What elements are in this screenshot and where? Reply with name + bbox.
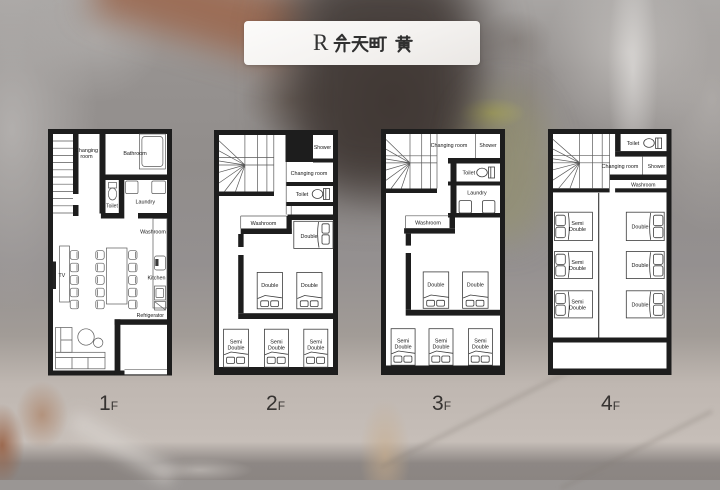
svg-text:R: R	[313, 30, 329, 55]
svg-text:Shower: Shower	[313, 145, 331, 151]
svg-text:Double: Double	[395, 345, 412, 351]
svg-text:Changing room: Changing room	[290, 171, 327, 177]
svg-text:Shower: Shower	[648, 164, 666, 170]
svg-text:Double: Double	[300, 234, 317, 240]
svg-text:Double: Double	[569, 227, 586, 233]
svg-text:Double: Double	[569, 305, 586, 311]
svg-text:Toilet: Toilet	[463, 171, 476, 177]
svg-text:Double: Double	[267, 345, 284, 351]
svg-text:Changing room: Changing room	[431, 143, 468, 149]
svg-text:Toilet: Toilet	[295, 192, 308, 198]
svg-text:Washroom: Washroom	[631, 183, 655, 189]
svg-text:Bathroom: Bathroom	[123, 151, 147, 157]
svg-text:Double: Double	[569, 266, 586, 272]
svg-text:Double: Double	[631, 225, 648, 231]
svg-text:Washroom: Washroom	[415, 221, 441, 227]
svg-text:Double: Double	[631, 263, 648, 269]
svg-text:Laundry: Laundry	[135, 200, 155, 206]
svg-text:Double: Double	[427, 283, 444, 289]
svg-text:Washroom: Washroom	[140, 230, 166, 236]
svg-text:Double: Double	[261, 283, 278, 289]
svg-text:Double: Double	[307, 345, 324, 351]
svg-text:Changing room: Changing room	[602, 164, 639, 170]
svg-text:Double: Double	[300, 283, 317, 289]
svg-text:Double: Double	[467, 283, 484, 289]
svg-text:Double: Double	[631, 302, 648, 308]
svg-text:Double: Double	[227, 345, 244, 351]
svg-text:Washroom: Washroom	[250, 221, 276, 227]
svg-text:Toilet: Toilet	[627, 141, 640, 147]
svg-text:Double: Double	[432, 345, 449, 351]
svg-text:Toilet: Toilet	[106, 204, 118, 210]
svg-text:TV: TV	[58, 273, 65, 279]
svg-text:Kitchen: Kitchen	[147, 276, 165, 282]
svg-text:Refrigerator: Refrigerator	[136, 313, 164, 319]
svg-text:Shower: Shower	[479, 143, 497, 149]
svg-text:Double: Double	[472, 345, 489, 351]
svg-text:room: room	[80, 154, 93, 160]
svg-text:Laundry: Laundry	[467, 191, 487, 197]
